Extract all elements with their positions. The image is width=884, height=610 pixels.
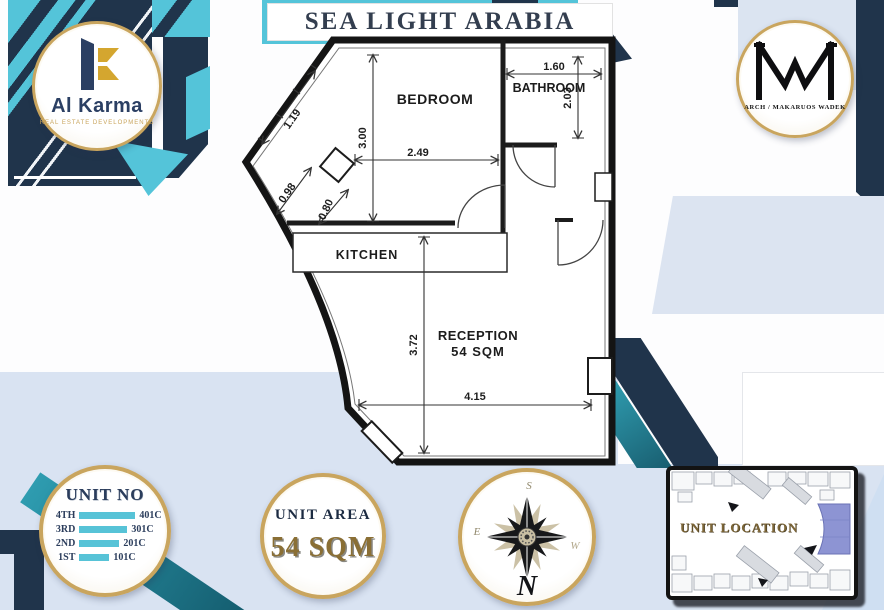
compass-south: S — [526, 480, 532, 492]
compass-north: N — [516, 571, 539, 602]
unit-no-panel: UNIT NO 4TH 401C 3RD 301C 2ND 201C 1ST 1… — [39, 465, 171, 597]
window-right-wall — [588, 358, 612, 394]
karma-k-icon — [67, 36, 127, 94]
floor-label: 4TH — [48, 510, 75, 521]
unit-area-value: 54 SQM — [271, 532, 376, 564]
floor-plan-poster: SEA LIGHT ARABIA — [0, 0, 884, 610]
floor-label: 2ND — [48, 538, 75, 549]
developer-logo: Al Karma REAL ESTATE DEVELOPMENTS — [32, 21, 162, 151]
unit-number: 201C — [123, 538, 145, 549]
room-label-bedroom: BEDROOM — [397, 91, 474, 107]
unit-no-rows: 4TH 401C 3RD 301C 2ND 201C 1ST 101C — [48, 510, 161, 562]
unit-area-title: UNIT AREA — [275, 507, 371, 524]
mw-monogram-icon — [749, 39, 841, 101]
room-label-kitchen: KITCHEN — [336, 248, 399, 262]
room-label-reception-area: 54 SQM — [451, 344, 505, 359]
dim-bathroom-width: 1.60 — [543, 61, 564, 73]
decor-periwinkle-parallelogram — [652, 196, 884, 314]
dim-bedroom-width: 2.49 — [407, 147, 428, 159]
decor-navy-band-right — [856, 0, 884, 218]
unit-location-panel: UNIT LOCATION — [666, 466, 858, 600]
decor-white-underline — [14, 176, 136, 179]
room-label-reception: RECEPTION — [438, 328, 518, 343]
kitchen-counter — [293, 233, 507, 272]
developer-tagline: REAL ESTATE DEVELOPMENTS — [40, 120, 155, 126]
unit-no-title: UNIT NO — [66, 485, 145, 505]
architect-logo: ARCH / MAKARUOS WADEK — [736, 20, 854, 138]
dim-reception-width: 4.15 — [464, 391, 485, 403]
dim-reception-height: 3.72 — [408, 334, 420, 355]
unit-no-row: 1ST 101C — [48, 552, 161, 562]
unit-no-row: 4TH 401C — [48, 510, 161, 520]
dim-bedroom-height: 3.00 — [357, 127, 369, 148]
floor-bar — [79, 554, 109, 561]
unit-location-title: UNIT LOCATION — [680, 520, 798, 536]
unit-number: 301C — [131, 524, 153, 535]
wall-shaft-right — [595, 173, 612, 201]
unit-no-row: 3RD 301C — [48, 524, 161, 534]
unit-no-row: 2ND 201C — [48, 538, 161, 548]
floor-bar — [79, 540, 119, 547]
floor-label: 3RD — [48, 524, 75, 535]
floor-bar — [79, 512, 135, 519]
room-label-bathroom: BATHROOM — [513, 81, 586, 95]
highlighted-unit — [818, 504, 850, 554]
compass-west: W — [570, 540, 580, 552]
developer-name: Al Karma — [51, 95, 143, 118]
floor-plan: 1.60 2.03 3.00 2.49 1.19 0.98 0.80 3.72 … — [205, 28, 635, 468]
unit-number: 101C — [113, 552, 135, 563]
decor-white-panel-right — [742, 372, 884, 466]
floor-bar — [79, 526, 127, 533]
compass-east: E — [473, 526, 481, 538]
architect-caption: ARCH / MAKARUOS WADEK — [744, 104, 846, 111]
unit-area-panel: UNIT AREA 54 SQM — [260, 473, 386, 599]
decor-cyan-strip-top-left — [152, 0, 210, 37]
compass-panel: S E W N — [458, 468, 596, 606]
unit-number: 401C — [139, 510, 161, 521]
floor-label: 1ST — [48, 552, 75, 563]
compass-rose-icon: S E W N — [462, 472, 592, 602]
